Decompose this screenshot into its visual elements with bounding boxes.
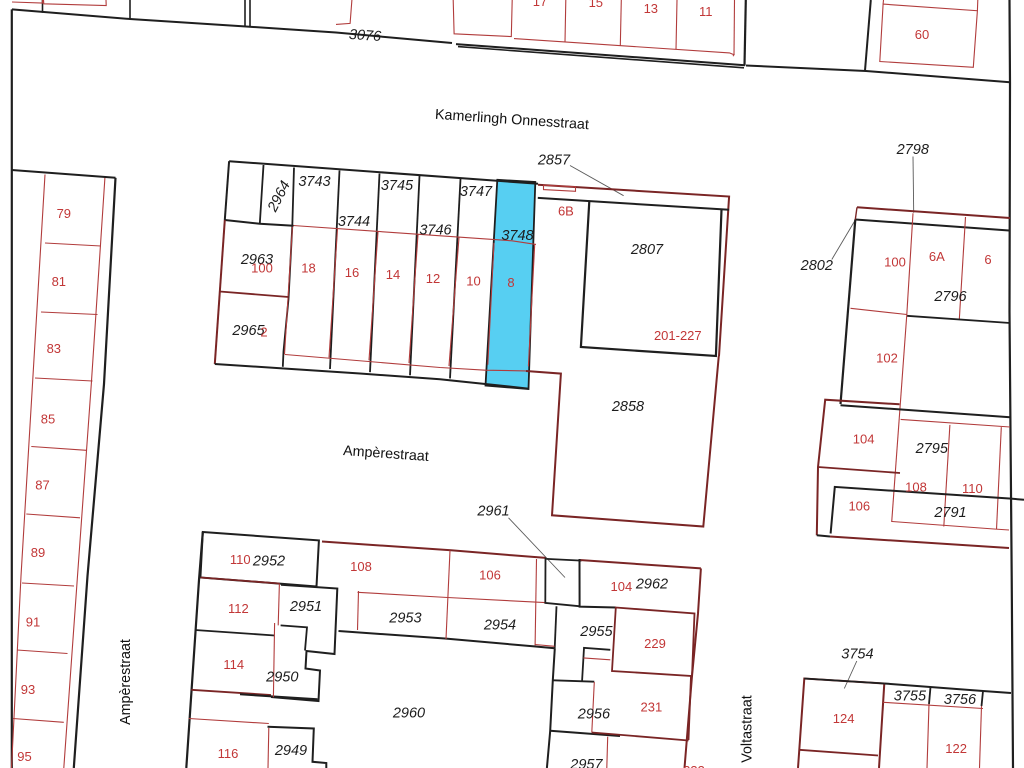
svg-text:79: 79 [57,206,71,221]
svg-text:15: 15 [589,0,603,10]
svg-text:2961: 2961 [476,503,509,519]
svg-text:87: 87 [35,478,49,493]
svg-text:3747: 3747 [460,184,493,200]
svg-text:14: 14 [386,267,400,282]
svg-text:3745: 3745 [381,178,414,194]
svg-text:3754: 3754 [841,647,873,663]
svg-text:2796: 2796 [933,289,967,305]
svg-text:201-227: 201-227 [654,328,702,343]
svg-text:3743: 3743 [298,174,330,190]
svg-text:13: 13 [644,1,658,16]
svg-text:2950: 2950 [265,670,298,686]
svg-text:2949: 2949 [274,743,307,759]
svg-text:2: 2 [260,325,267,340]
svg-text:2795: 2795 [915,441,949,457]
svg-text:2857: 2857 [537,153,571,169]
svg-text:3755: 3755 [894,688,927,704]
svg-text:17: 17 [533,0,547,9]
svg-text:2960: 2960 [392,705,425,721]
svg-text:2858: 2858 [611,399,644,415]
svg-text:104: 104 [853,431,875,446]
svg-text:231: 231 [641,700,663,715]
svg-text:110: 110 [230,552,251,567]
svg-text:3748: 3748 [501,228,533,244]
svg-text:110: 110 [962,481,983,496]
svg-text:3744: 3744 [338,214,370,230]
svg-text:106: 106 [479,568,501,583]
svg-text:8: 8 [507,275,514,290]
svg-text:95: 95 [17,749,31,764]
svg-text:16: 16 [345,265,359,280]
svg-text:124: 124 [833,711,855,726]
svg-text:2962: 2962 [635,577,668,593]
svg-text:229: 229 [644,636,666,651]
svg-text:114: 114 [223,657,244,672]
svg-text:2798: 2798 [896,142,929,158]
svg-text:100: 100 [884,255,906,270]
svg-text:2955: 2955 [579,624,613,640]
svg-text:93: 93 [21,682,35,697]
svg-text:2951: 2951 [289,599,322,615]
svg-text:3076: 3076 [348,27,382,45]
svg-text:Voltastraat: Voltastraat [740,695,756,763]
svg-text:83: 83 [47,341,61,356]
svg-text:2953: 2953 [388,611,421,627]
svg-text:100: 100 [251,261,273,276]
svg-text:11: 11 [699,4,713,19]
svg-text:2807: 2807 [630,242,664,258]
svg-text:Ampèrestraat: Ampèrestraat [118,639,134,725]
svg-text:108: 108 [905,480,927,495]
svg-text:6A: 6A [929,249,945,264]
svg-text:2954: 2954 [483,618,516,634]
svg-text:89: 89 [31,545,45,560]
svg-text:3746: 3746 [419,223,452,239]
svg-text:18: 18 [301,261,315,276]
svg-text:12: 12 [426,271,440,286]
svg-text:116: 116 [218,746,239,761]
svg-text:122: 122 [945,741,967,756]
svg-text:91: 91 [26,615,40,630]
svg-text:2802: 2802 [800,258,833,274]
svg-text:102: 102 [876,351,898,366]
svg-text:81: 81 [52,274,66,289]
svg-text:60: 60 [915,27,929,42]
svg-text:108: 108 [350,559,372,574]
svg-text:10: 10 [466,274,480,289]
svg-text:112: 112 [228,601,249,616]
svg-text:3756: 3756 [944,692,977,708]
svg-text:6: 6 [984,252,991,267]
svg-text:2791: 2791 [933,505,966,521]
svg-text:2957: 2957 [569,757,603,768]
svg-text:104: 104 [611,579,633,594]
svg-text:106: 106 [848,498,870,513]
svg-text:6B: 6B [558,204,574,219]
svg-text:85: 85 [41,412,55,427]
svg-text:2952: 2952 [252,554,285,570]
svg-text:2956: 2956 [577,707,611,723]
svg-text:233: 233 [683,763,705,768]
